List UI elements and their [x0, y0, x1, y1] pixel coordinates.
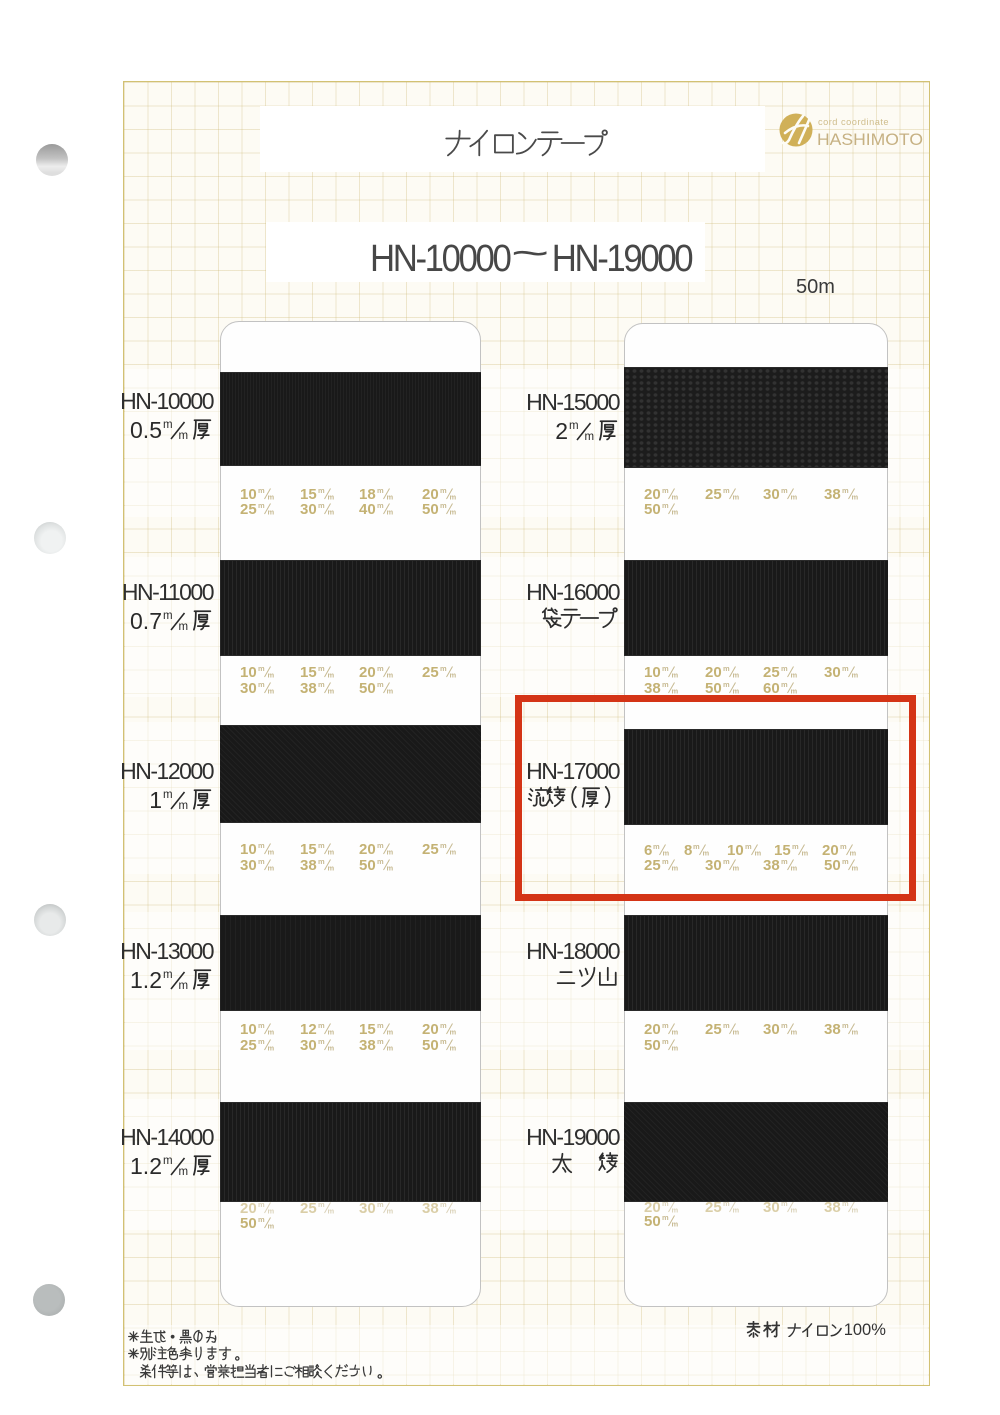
svg-text:m: m [449, 492, 456, 500]
svg-text:m: m [258, 858, 265, 866]
svg-text:m: m [662, 1022, 669, 1030]
svg-text:m: m [723, 1022, 730, 1030]
svg-text:m: m [449, 1027, 456, 1035]
svg-text:m: m [440, 1022, 447, 1030]
svg-text:m: m [318, 487, 325, 495]
svg-text:m: m [781, 487, 788, 495]
svg-text:m: m [258, 487, 265, 495]
svg-text:m: m [327, 492, 334, 500]
svg-text:m: m [386, 1206, 393, 1214]
svg-text:m: m [723, 665, 730, 673]
svg-text:m: m [662, 487, 669, 495]
svg-text:m: m [163, 969, 173, 981]
svg-text:m: m [671, 670, 678, 678]
svg-text:m: m [449, 1206, 456, 1214]
svg-text:m: m [267, 686, 274, 694]
svg-text:m: m [781, 665, 788, 673]
svg-text:m: m [386, 670, 393, 678]
svg-text:m: m [790, 670, 797, 678]
svg-text:m: m [440, 842, 447, 850]
svg-text:m: m [327, 847, 334, 855]
svg-text:m: m [851, 1027, 858, 1035]
svg-text:m: m [163, 1155, 173, 1167]
svg-text:m: m [327, 1027, 334, 1035]
svg-text:m: m [318, 665, 325, 673]
svg-text:m: m [377, 665, 384, 673]
svg-text:m: m [440, 502, 447, 510]
svg-text:m: m [440, 1038, 447, 1046]
svg-text:m: m [386, 1027, 393, 1035]
svg-text:m: m [732, 686, 739, 694]
svg-text:m: m [723, 681, 730, 689]
svg-text:m: m [851, 1205, 858, 1213]
svg-text:m: m [671, 1027, 678, 1035]
svg-text:m: m [662, 1214, 669, 1222]
svg-text:m: m [671, 507, 678, 515]
svg-text:m: m [732, 1027, 739, 1035]
svg-text:m: m [267, 1027, 274, 1035]
svg-text:m: m [318, 502, 325, 510]
svg-text:m: m [662, 502, 669, 510]
svg-text:m: m [377, 487, 384, 495]
svg-text:m: m [671, 492, 678, 500]
svg-text:m: m [258, 842, 265, 850]
svg-text:m: m [318, 1038, 325, 1046]
svg-text:m: m [327, 863, 334, 871]
svg-text:m: m [790, 1027, 797, 1035]
svg-text:m: m [179, 800, 189, 810]
svg-text:m: m [842, 1022, 849, 1030]
svg-text:m: m [723, 487, 730, 495]
svg-text:m: m [267, 863, 274, 871]
svg-text:m: m [386, 863, 393, 871]
svg-text:m: m [449, 507, 456, 515]
svg-text:m: m [781, 1022, 788, 1030]
svg-text:m: m [662, 1038, 669, 1046]
svg-text:m: m [386, 1043, 393, 1051]
svg-text:m: m [267, 670, 274, 678]
svg-text:m: m [662, 665, 669, 673]
svg-text:m: m [449, 1043, 456, 1051]
svg-text:m: m [267, 1043, 274, 1051]
svg-text:m: m [179, 430, 189, 440]
svg-text:m: m [790, 492, 797, 500]
svg-text:HASHIMOTO: HASHIMOTO [817, 130, 923, 149]
svg-text:m: m [318, 1022, 325, 1030]
svg-text:m: m [258, 665, 265, 673]
svg-text:m: m [258, 681, 265, 689]
svg-text:m: m [569, 420, 579, 432]
svg-text:cord coordinate: cord coordinate [818, 117, 889, 128]
svg-text:m: m [267, 492, 274, 500]
svg-text:m: m [267, 847, 274, 855]
svg-text:m: m [790, 686, 797, 694]
svg-text:m: m [327, 1206, 334, 1214]
svg-text:m: m [790, 1205, 797, 1213]
svg-text:m: m [267, 1206, 274, 1214]
svg-text:m: m [732, 1205, 739, 1213]
svg-text:m: m [163, 419, 173, 431]
svg-text:m: m [671, 686, 678, 694]
svg-text:m: m [327, 507, 334, 515]
svg-text:m: m [377, 1038, 384, 1046]
svg-text:m: m [842, 665, 849, 673]
svg-text:m: m [386, 686, 393, 694]
svg-text:m: m [258, 502, 265, 510]
svg-text:m: m [327, 686, 334, 694]
svg-text:m: m [386, 847, 393, 855]
svg-text:m: m [671, 1219, 678, 1227]
svg-text:m: m [179, 980, 189, 990]
svg-text:m: m [585, 431, 595, 441]
svg-text:m: m [318, 858, 325, 866]
svg-text:m: m [842, 487, 849, 495]
svg-text:m: m [179, 621, 189, 631]
svg-text:m: m [163, 610, 173, 622]
svg-text:m: m [732, 670, 739, 678]
svg-text:m: m [440, 665, 447, 673]
svg-text:m: m [386, 507, 393, 515]
svg-text:m: m [377, 858, 384, 866]
svg-text:m: m [662, 681, 669, 689]
svg-text:m: m [318, 842, 325, 850]
svg-text:m: m [267, 507, 274, 515]
svg-text:m: m [377, 1022, 384, 1030]
svg-text:m: m [258, 1216, 265, 1224]
svg-text:m: m [318, 681, 325, 689]
svg-text:m: m [440, 487, 447, 495]
svg-text:m: m [163, 789, 173, 801]
svg-text:m: m [258, 1022, 265, 1030]
svg-text:m: m [851, 492, 858, 500]
svg-text:m: m [851, 670, 858, 678]
svg-text:m: m [327, 670, 334, 678]
svg-text:m: m [671, 1043, 678, 1051]
svg-text:m: m [377, 842, 384, 850]
svg-text:m: m [327, 1043, 334, 1051]
svg-text:m: m [258, 1038, 265, 1046]
svg-text:m: m [377, 502, 384, 510]
svg-text:m: m [449, 847, 456, 855]
svg-text:m: m [671, 1205, 678, 1213]
svg-text:m: m [386, 492, 393, 500]
svg-text:m: m [267, 1221, 274, 1229]
svg-text:m: m [781, 681, 788, 689]
svg-text:m: m [377, 681, 384, 689]
svg-text:m: m [449, 670, 456, 678]
svg-text:m: m [732, 492, 739, 500]
svg-text:m: m [179, 1166, 189, 1176]
